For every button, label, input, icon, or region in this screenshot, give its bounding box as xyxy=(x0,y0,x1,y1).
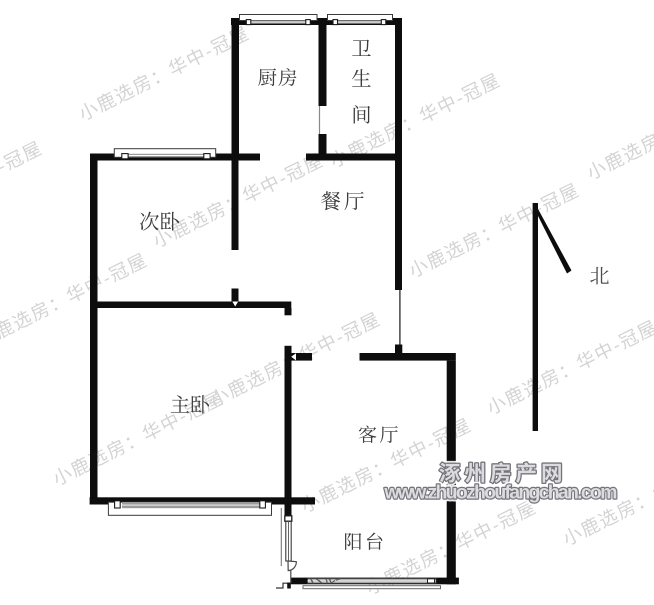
svg-text:www.zhuozhoufangchan.com: www.zhuozhoufangchan.com xyxy=(383,482,617,504)
